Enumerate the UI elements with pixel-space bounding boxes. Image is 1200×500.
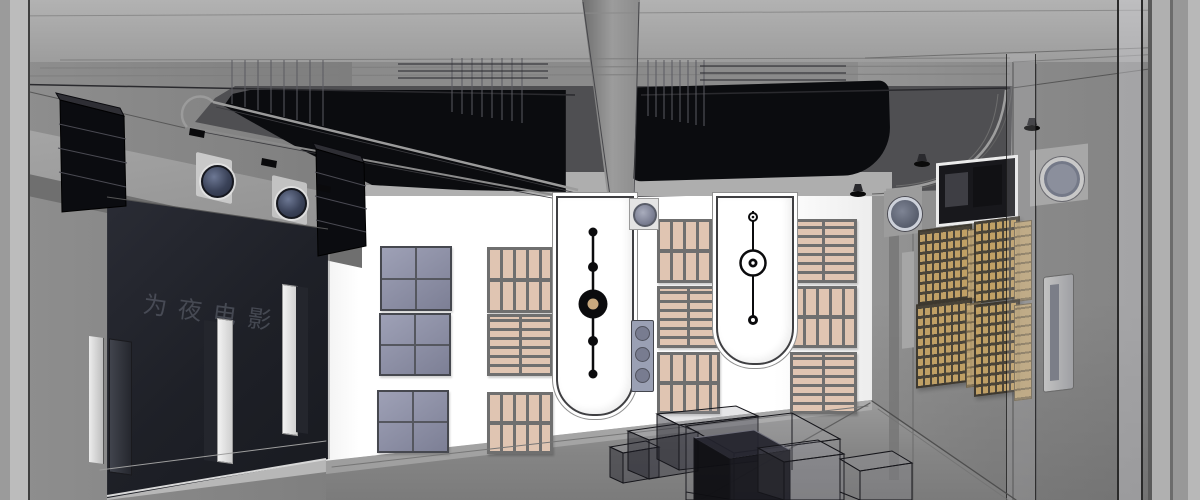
- pendulum-fixture-right: [718, 198, 788, 359]
- rear-column-speaker: [1043, 273, 1074, 393]
- wood-slat-panel-c3-top: [790, 219, 857, 283]
- right-edge-strip-5: [1188, 0, 1200, 500]
- speaker-tower-left-bar: [89, 336, 104, 464]
- downlight-cone: [853, 184, 863, 191]
- glass-post-near: [1117, 0, 1143, 500]
- speaker-column-panel: [631, 320, 654, 392]
- speaker-tower-right-panel: [296, 286, 308, 434]
- wood-slat-panel-c3-bottom: [790, 352, 857, 414]
- wood-slat-panel-c1-mid: [487, 314, 553, 376]
- soffit-round-speaker-1: [201, 165, 234, 198]
- downlight-cone: [917, 154, 927, 161]
- rear-round-speaker-1: [888, 197, 922, 231]
- rear-round-speaker-2: [1040, 157, 1084, 201]
- booth-projector: [973, 164, 1002, 208]
- glass-post-far: [1006, 54, 1036, 500]
- downlight-disc: [914, 161, 930, 167]
- home-theater-render: 为夜电影音: [0, 0, 1200, 500]
- wall-niche-right: [716, 196, 794, 365]
- inwall-speaker-cone: [633, 203, 657, 227]
- blue-acoustic-panel-2: [379, 313, 451, 376]
- rear-wall-dark-strip: [889, 210, 899, 480]
- right-edge-strip-2: [1152, 0, 1170, 500]
- blue-acoustic-panel-3: [377, 390, 449, 453]
- speaker-tower-center-panel: [204, 320, 217, 462]
- rear-wall-strip-small: [902, 251, 914, 348]
- rear-column-speaker-slot: [1050, 284, 1059, 381]
- column-driver-1: [635, 326, 650, 341]
- qrd-diffuser-top-left: [918, 224, 972, 305]
- downlight-1: [850, 184, 866, 197]
- wood-slat-panel-c1-top: [487, 247, 553, 313]
- right-edge-strip-4: [1173, 0, 1188, 500]
- wood-slat-panel-c1-bottom: [487, 392, 553, 454]
- wood-slat-panel-c3-mid: [790, 286, 857, 348]
- qrd-diffuser-bottom-left: [916, 298, 972, 389]
- pendulum-fixture-left: [558, 198, 628, 410]
- soffit-round-speaker-2: [276, 188, 307, 219]
- column-driver-2: [635, 347, 650, 362]
- wall-niche-left: [556, 196, 634, 416]
- wood-slat-panel-c2-top: [657, 219, 720, 283]
- wood-slat-panel-c2-mid: [657, 286, 720, 348]
- left-edge-strip-outer: [0, 0, 10, 500]
- column-driver-3: [635, 368, 650, 383]
- left-edge-strip-inner: [10, 0, 30, 500]
- wood-slat-panel-c2-bottom: [657, 352, 720, 414]
- downlight-2: [914, 154, 930, 167]
- speaker-tower-center-bar: [217, 318, 233, 464]
- speaker-tower-left-panel: [109, 338, 132, 475]
- ceiling-coffer-right: [627, 80, 892, 181]
- inwall-speaker-square: [629, 198, 659, 230]
- downlight-disc: [850, 191, 866, 197]
- booth-equipment-shelf: [945, 172, 968, 207]
- blue-acoustic-panel-1: [380, 246, 452, 311]
